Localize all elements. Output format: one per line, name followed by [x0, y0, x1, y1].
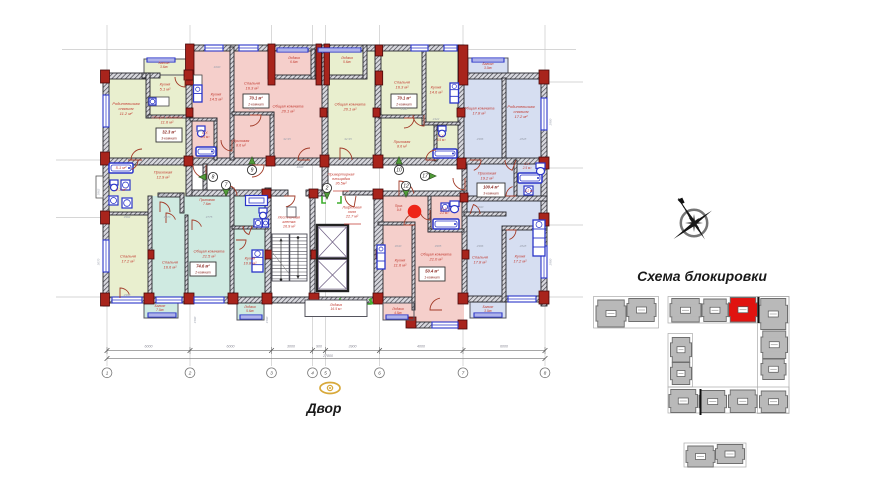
svg-text:8.6 м²: 8.6 м²: [236, 143, 246, 147]
svg-text:1-комнат: 1-комнат: [424, 276, 440, 280]
svg-text:7.0м²: 7.0м²: [156, 308, 165, 312]
svg-text:19.2 м²: 19.2 м²: [481, 175, 495, 180]
svg-text:16.3 м²: 16.3 м²: [246, 85, 260, 90]
svg-text:3.0м²: 3.0м²: [484, 309, 493, 313]
svg-text:2-комнат: 2-комнат: [247, 103, 264, 107]
svg-text:9.8: 9.8: [397, 208, 402, 212]
svg-text:3.5 м²: 3.5 м²: [201, 135, 211, 139]
svg-text:12: 12: [403, 184, 409, 190]
svg-text:2.2 м²: 2.2 м²: [524, 189, 535, 193]
svg-text:2986: 2986: [476, 244, 484, 248]
svg-text:14.5 м²: 14.5 м²: [210, 96, 224, 101]
svg-text:3030: 3030: [160, 193, 167, 197]
svg-text:32.95: 32.95: [344, 137, 352, 141]
svg-text:4000: 4000: [214, 65, 221, 69]
svg-text:Лестничная: Лестничная: [277, 215, 300, 219]
svg-text:16.6 м²: 16.6 м²: [164, 264, 178, 269]
svg-text:3-комнат: 3-комнат: [483, 192, 499, 196]
svg-text:3.6м²: 3.6м²: [160, 65, 169, 69]
svg-text:5.1 м²: 5.1 м²: [116, 165, 127, 170]
svg-text:5.1 м²: 5.1 м²: [160, 86, 171, 91]
svg-text:Прихожая: Прихожая: [233, 139, 250, 143]
svg-text:16.5 м²: 16.5 м²: [331, 307, 343, 311]
svg-text:4000: 4000: [477, 205, 484, 209]
svg-text:1: 1: [106, 371, 109, 376]
svg-text:6000: 6000: [500, 345, 508, 349]
svg-text:площадка: площадка: [332, 177, 350, 181]
svg-text:1500: 1500: [265, 316, 269, 323]
svg-text:16.9 м²: 16.9 м²: [283, 225, 296, 229]
svg-text:11.2 м²: 11.2 м²: [120, 111, 133, 116]
svg-text:21.5 м²: 21.5 м²: [202, 253, 217, 258]
svg-text:3962: 3962: [97, 188, 101, 195]
svg-text:2.7 м²: 2.7 м²: [115, 187, 127, 192]
svg-text:7: 7: [225, 183, 228, 189]
svg-text:3-комнат: 3-комнат: [161, 137, 177, 141]
svg-text:Схема блокировки: Схема блокировки: [637, 268, 767, 284]
svg-text:70.1 м²: 70.1 м²: [397, 96, 411, 101]
svg-text:3962: 3962: [124, 215, 131, 219]
svg-text:4.5м²: 4.5м²: [394, 311, 403, 315]
svg-text:5: 5: [324, 371, 327, 376]
svg-text:2980: 2980: [248, 107, 256, 111]
svg-text:7.6м²: 7.6м²: [203, 202, 212, 206]
svg-text:6.6м²: 6.6м²: [290, 60, 299, 64]
svg-text:50.4 м²: 50.4 м²: [425, 269, 439, 274]
svg-text:9: 9: [251, 168, 254, 174]
svg-text:4: 4: [311, 371, 314, 376]
svg-text:7: 7: [462, 371, 465, 376]
svg-text:17.8 м²: 17.8 м²: [473, 110, 487, 115]
svg-text:2828: 2828: [519, 244, 527, 248]
svg-text:2.2 м²: 2.2 м²: [439, 211, 450, 215]
svg-text:4000: 4000: [417, 345, 425, 349]
svg-text:3000: 3000: [287, 345, 295, 349]
svg-text:2980: 2980: [549, 118, 553, 126]
svg-text:6: 6: [378, 371, 381, 376]
svg-text:2: 2: [188, 371, 192, 376]
svg-text:32.3 м²: 32.3 м²: [162, 130, 176, 135]
svg-text:3900: 3900: [349, 345, 357, 349]
svg-text:3775: 3775: [206, 215, 213, 219]
svg-text:3.0м²: 3.0м²: [484, 66, 493, 70]
svg-text:Привартирная: Привартирная: [328, 172, 355, 176]
svg-text:2-комнат: 2-комнат: [395, 103, 412, 107]
svg-text:8.6 м²: 8.6 м²: [397, 144, 407, 148]
svg-text:6000: 6000: [227, 345, 235, 349]
svg-text:70.1 м²: 70.1 м²: [249, 96, 263, 101]
svg-text:1500: 1500: [193, 316, 197, 323]
svg-text:4000: 4000: [297, 165, 304, 169]
svg-text:8: 8: [212, 175, 215, 181]
svg-text:17.2 м²: 17.2 м²: [515, 114, 529, 119]
svg-text:10.8 м²: 10.8 м²: [244, 260, 258, 265]
svg-text:2980: 2980: [123, 293, 131, 297]
svg-text:100.4 м²: 100.4 м²: [483, 185, 499, 190]
svg-text:3030: 3030: [395, 244, 402, 248]
svg-text:8: 8: [544, 371, 547, 376]
svg-text:900: 900: [316, 345, 322, 349]
svg-text:3070: 3070: [164, 215, 171, 219]
svg-text:холл: холл: [347, 210, 357, 214]
svg-text:16.3 м²: 16.3 м²: [396, 84, 410, 89]
svg-text:17: 17: [422, 174, 428, 180]
svg-text:2.5 м²: 2.5 м²: [522, 166, 533, 170]
svg-text:Лифтовая: Лифтовая: [341, 205, 361, 209]
svg-text:10: 10: [396, 168, 402, 174]
svg-text:2-комнат: 2-комнат: [194, 271, 211, 275]
svg-text:2: 2: [325, 186, 329, 192]
svg-text:17.2 м²: 17.2 м²: [514, 258, 528, 263]
svg-text:17.8 м²: 17.8 м²: [474, 259, 488, 264]
svg-text:3.5 м²: 3.5 м²: [437, 138, 447, 142]
svg-text:3: 3: [270, 371, 273, 376]
svg-text:5.6м²: 5.6м²: [343, 60, 352, 64]
svg-text:20.1 м²: 20.1 м²: [343, 106, 358, 111]
svg-text:27800: 27800: [322, 354, 333, 358]
svg-text:2828: 2828: [519, 137, 527, 141]
svg-text:20.1 м²: 20.1 м²: [281, 108, 296, 113]
svg-text:17.2 м²: 17.2 м²: [122, 258, 136, 263]
svg-text:22.7 м²: 22.7 м²: [345, 215, 359, 219]
svg-text:3985: 3985: [435, 244, 442, 248]
svg-text:5.6м²: 5.6м²: [246, 309, 255, 313]
svg-text:2980: 2980: [400, 107, 408, 111]
svg-text:14.6 м²: 14.6 м²: [430, 89, 444, 94]
svg-text:3070: 3070: [97, 258, 101, 265]
svg-text:Прихожая: Прихожая: [394, 140, 411, 144]
svg-text:12.9 м²: 12.9 м²: [157, 174, 171, 179]
svg-text:2980: 2980: [195, 129, 203, 133]
svg-text:2980: 2980: [549, 258, 553, 266]
svg-text:2422: 2422: [432, 117, 440, 121]
svg-text:21.0 м²: 21.0 м²: [429, 256, 444, 261]
svg-text:11.6 м²: 11.6 м²: [161, 119, 174, 124]
svg-text:клетка: клетка: [282, 220, 295, 224]
svg-text:74.6 м²: 74.6 м²: [196, 264, 210, 269]
svg-text:2986: 2986: [476, 137, 484, 141]
svg-text:36.5м²: 36.5м²: [335, 182, 347, 186]
svg-text:11.6 м²: 11.6 м²: [394, 262, 407, 267]
svg-text:32.95: 32.95: [283, 137, 291, 141]
svg-text:Двор: Двор: [306, 401, 342, 416]
svg-text:6000: 6000: [145, 345, 153, 349]
